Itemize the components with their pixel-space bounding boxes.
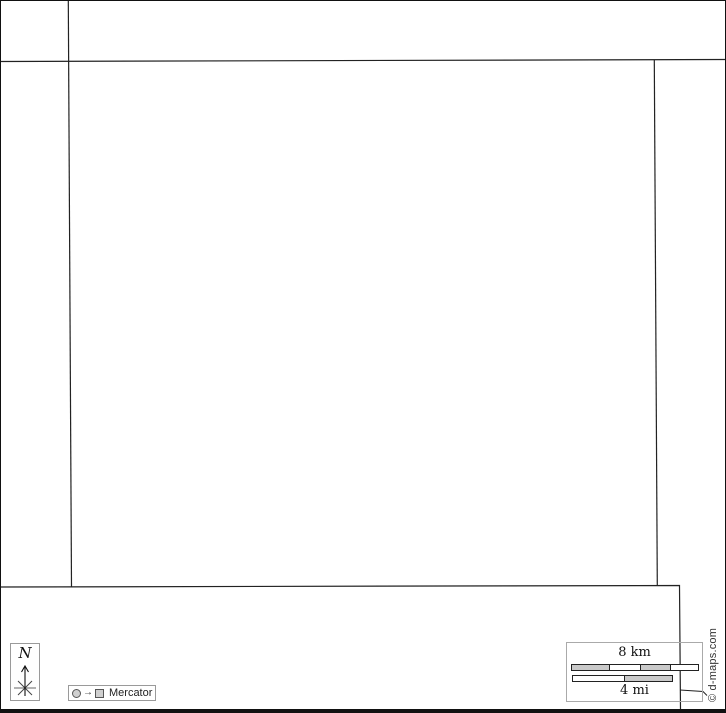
sphere-icon [72, 689, 81, 698]
scale-bar-mi [572, 675, 673, 682]
north-indicator: N [10, 643, 40, 701]
scale-segment [640, 665, 670, 670]
projection-legend: → Mercator [68, 685, 156, 701]
boundary-line-west [68, 0, 71, 587]
north-label: N [11, 644, 39, 663]
north-arrow-icon [11, 663, 39, 701]
projection-name: Mercator [109, 687, 152, 699]
scale-bar-km [571, 664, 699, 671]
scale-segment [609, 665, 640, 670]
scale-segment [572, 665, 609, 670]
boundary-line-north [0, 60, 726, 62]
scale-km-label: 8 km [567, 646, 702, 660]
scale-segment [573, 676, 624, 681]
boundary-line-east [654, 60, 657, 586]
scale-bar-legend: 8 km 4 mi [566, 642, 703, 702]
map-boundary-lines [0, 0, 726, 713]
scale-mi-label: 4 mi [567, 684, 702, 698]
scale-segment [670, 665, 698, 670]
scale-segment [624, 676, 672, 681]
projected-square-icon [95, 689, 104, 698]
copyright-text: © d-maps.com [707, 628, 719, 702]
arrow-right-icon: → [83, 688, 93, 698]
map-sheet: N → Mercator 8 km 4 mi © [0, 0, 726, 713]
